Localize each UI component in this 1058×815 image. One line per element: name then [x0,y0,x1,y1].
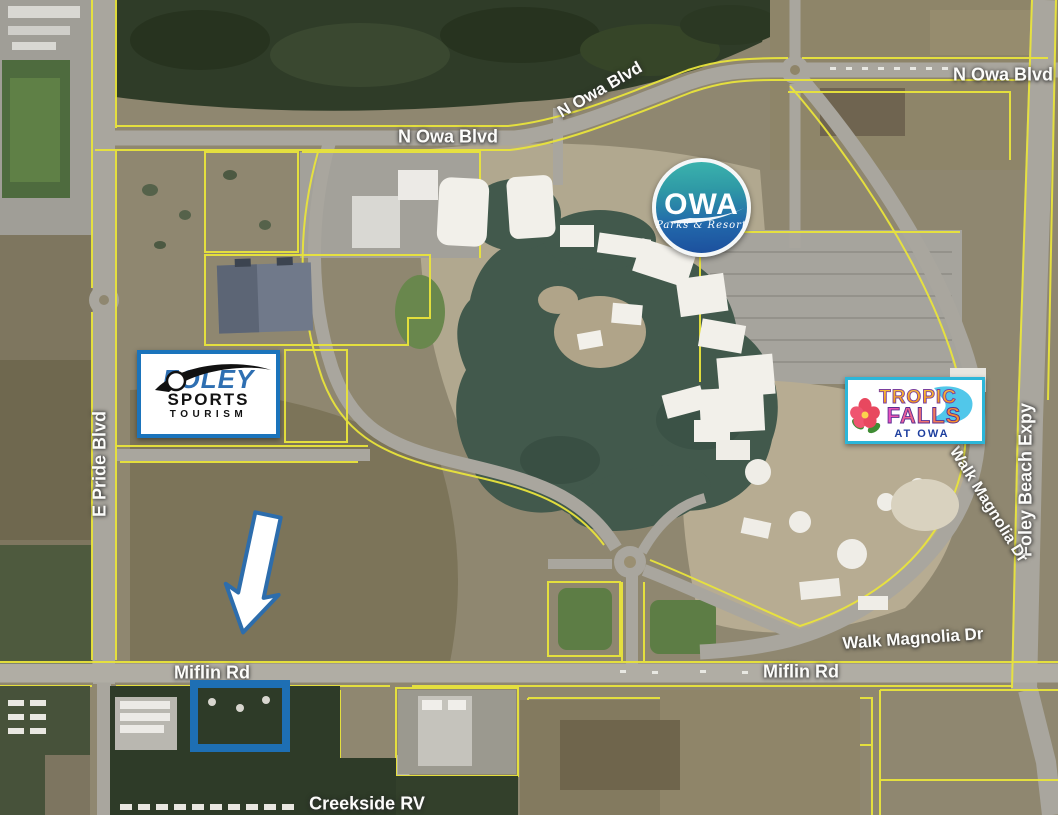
at-owa-text: AT OWA [894,428,949,440]
tropic-falls-logo: TROPIC FALLS AT OWA [845,377,985,444]
highlighted-parcel-box [190,680,290,752]
foley-logo-line3: TOURISM [170,409,247,421]
foley-swoosh-icon [149,360,277,394]
falls-text: FALLS [887,403,962,428]
owa-wave-swoosh-icon [666,206,746,228]
aerial-map: N Owa Blvd N Owa Blvd N Owa Blvd E Pride… [0,0,1058,815]
tropic-falls-artwork: TROPIC FALLS AT OWA [848,380,982,441]
foley-sports-tourism-logo: FOLEY SPORTS TOURISM [137,350,280,438]
hibiscus-flower-icon [848,398,882,435]
bottom-parcels [0,686,860,815]
event-center-building [217,256,314,333]
site-pointer-arrow [205,505,325,645]
owa-parks-resort-logo: OWA Parks & Resort [652,158,751,257]
